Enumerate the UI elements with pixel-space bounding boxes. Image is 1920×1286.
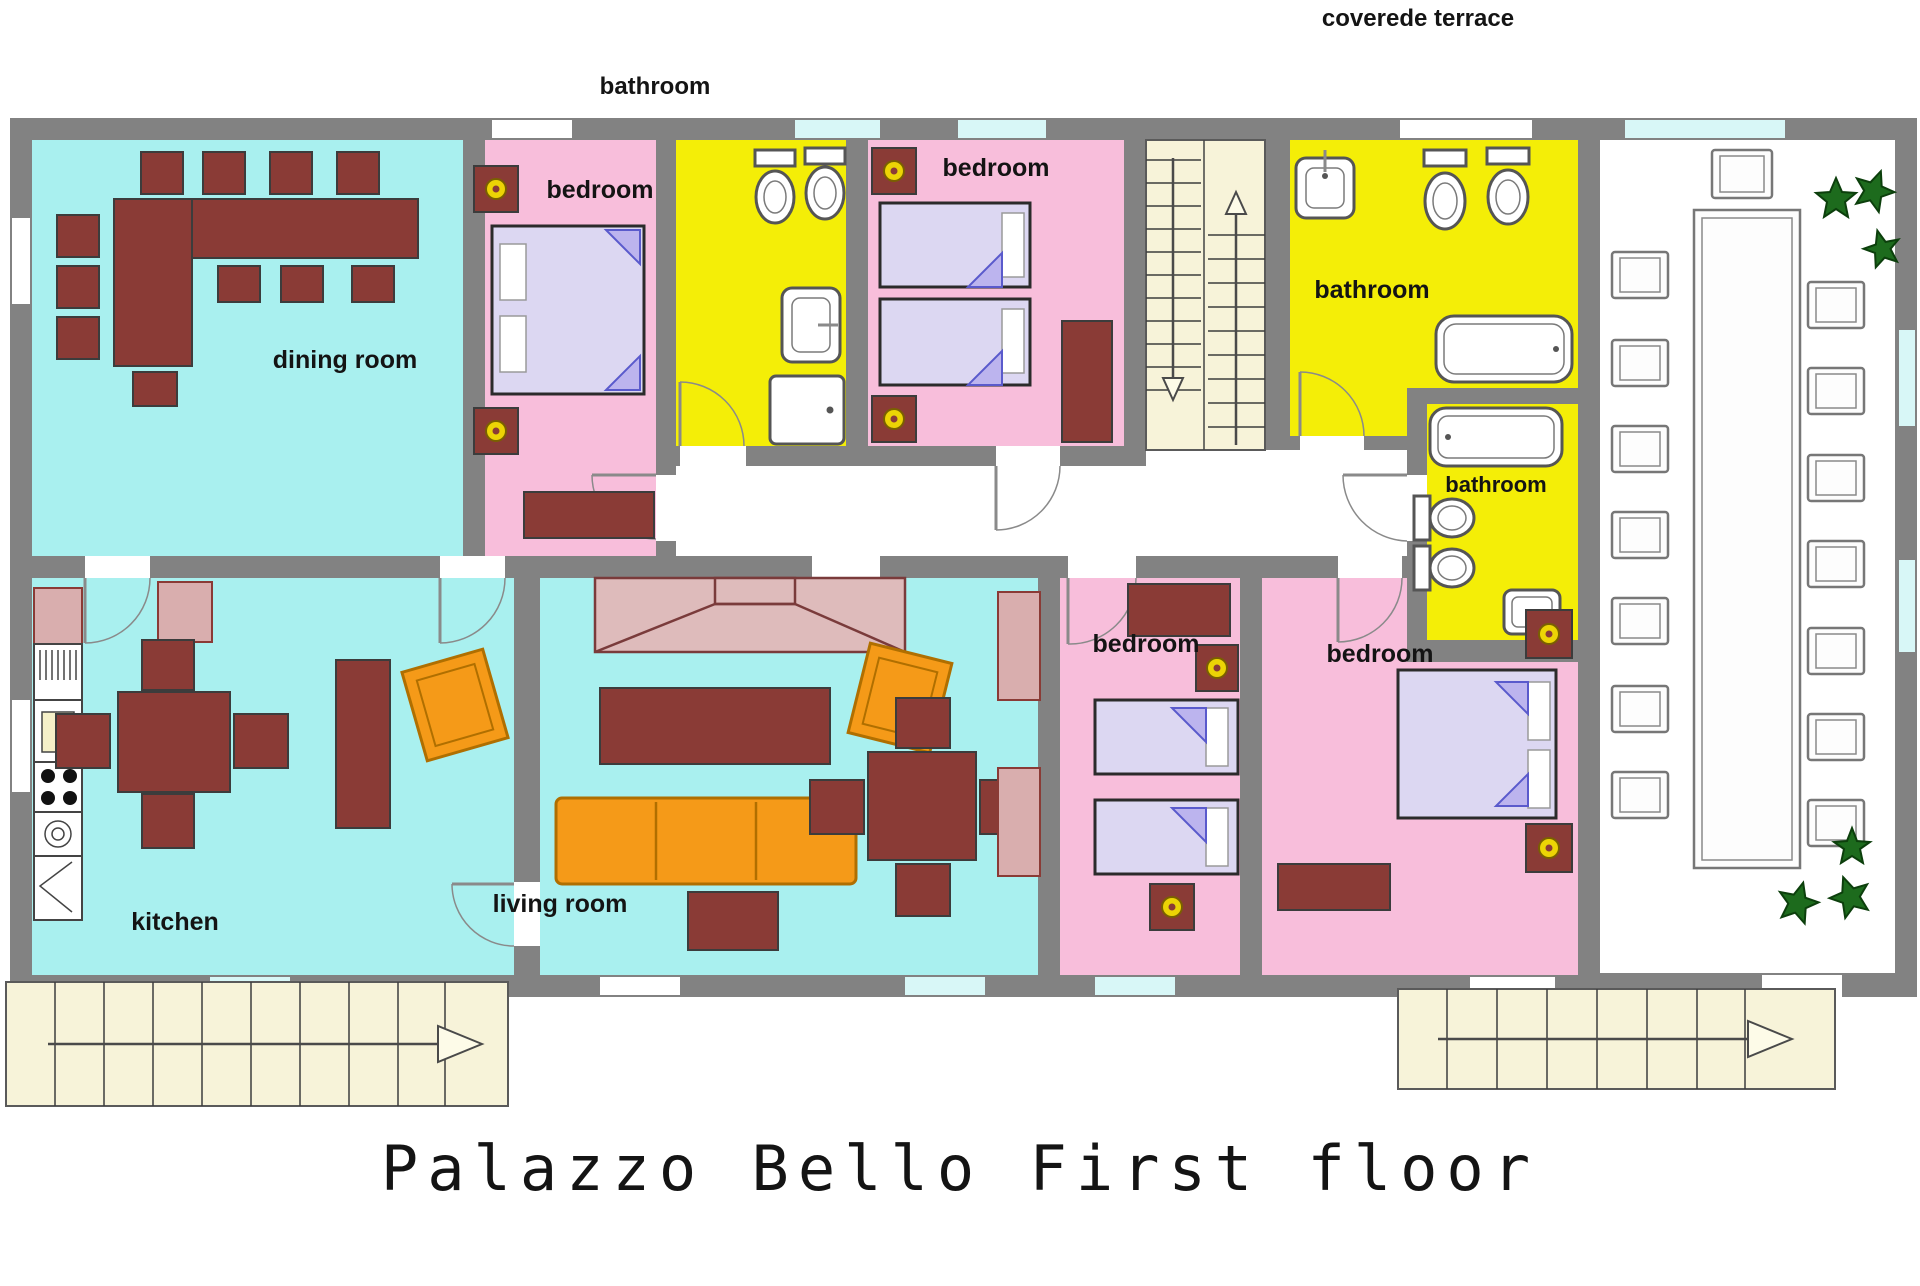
wardrobe — [1278, 864, 1390, 910]
wardrobe — [1128, 584, 1230, 636]
terrace-chair — [1612, 340, 1668, 386]
chair — [57, 215, 99, 257]
kitchen-label: kitchen — [131, 908, 219, 936]
wall-segment — [514, 578, 540, 882]
coffee-table — [600, 688, 830, 764]
chair — [141, 152, 183, 194]
wall-segment — [1136, 556, 1338, 578]
pillow — [1528, 750, 1550, 808]
bidet-icon — [805, 148, 845, 219]
wall-segment — [1290, 436, 1300, 450]
washing-machine-icon — [34, 812, 82, 856]
fireplace — [595, 578, 905, 652]
page-title: Palazzo Bello First floor — [381, 1132, 1539, 1205]
window — [1899, 560, 1915, 652]
window — [600, 977, 680, 995]
lamp-icon — [1162, 897, 1182, 917]
cabinet — [158, 582, 212, 642]
floor-plan-canvas: coverede terrace bathroom dining room be… — [0, 0, 1920, 1286]
wall-segment — [656, 541, 676, 556]
sink-icon — [782, 288, 840, 362]
dish-rack-icon — [34, 644, 82, 700]
chair — [133, 372, 177, 406]
floor-plan-page: coverede terrace bathroom dining room be… — [0, 0, 1920, 1286]
toilet-icon — [1424, 150, 1466, 229]
bedroom-4-floor-left — [1262, 578, 1407, 975]
fridge-icon — [34, 856, 82, 920]
wall-segment — [1407, 404, 1427, 475]
pillow — [1528, 682, 1550, 740]
bedroom-1-label: bedroom — [547, 176, 654, 204]
window — [795, 120, 880, 138]
terrace-chair — [1612, 598, 1668, 644]
bathroom-small-label: bathroom — [1445, 472, 1546, 497]
dresser — [524, 492, 654, 538]
bidet-icon — [1414, 546, 1474, 590]
kitchen-floor — [32, 578, 514, 975]
sink-icon — [1296, 150, 1354, 218]
chair — [56, 714, 110, 768]
chair — [57, 266, 99, 308]
wall-segment — [880, 556, 1068, 578]
chair — [352, 266, 394, 302]
lamp-icon — [1539, 624, 1559, 644]
dining-room-label: dining room — [273, 346, 417, 374]
terrace-chair — [1808, 628, 1864, 674]
chair — [270, 152, 312, 194]
wall-segment — [1364, 436, 1407, 450]
terrace-chair — [1612, 512, 1668, 558]
toilet-icon — [1487, 148, 1529, 224]
lamp-icon — [884, 161, 904, 181]
counter-cabinet — [34, 588, 82, 644]
bedroom-2-label: bedroom — [943, 154, 1050, 182]
wall-segment — [1402, 556, 1407, 578]
bed-icon — [1095, 700, 1238, 774]
bed-icon — [492, 226, 644, 394]
pillow — [1206, 708, 1228, 766]
sideboard — [688, 892, 778, 950]
lamp-icon — [884, 409, 904, 429]
chair — [203, 152, 245, 194]
wall-segment — [1407, 388, 1578, 404]
window — [12, 700, 30, 792]
bathroom-top-label: bathroom — [600, 73, 711, 100]
staircase-bottom-left — [6, 982, 508, 1106]
bedroom-3-label: bedroom — [1093, 630, 1200, 658]
window — [1095, 977, 1175, 995]
pillow — [500, 316, 526, 372]
wall-segment — [1060, 446, 1146, 466]
wall-segment — [514, 946, 540, 975]
cabinet — [998, 592, 1040, 700]
bed-icon — [1398, 670, 1556, 818]
toilet-icon — [1414, 496, 1474, 540]
wall-segment — [150, 556, 440, 578]
terrace-chair — [1808, 368, 1864, 414]
terrace-chair — [1808, 282, 1864, 328]
wall-segment — [505, 556, 812, 578]
terrace-chair — [1712, 150, 1772, 198]
window — [1899, 330, 1915, 426]
chair — [142, 640, 194, 690]
pillow — [1206, 808, 1228, 866]
terrace-chair — [1808, 541, 1864, 587]
table — [868, 752, 976, 860]
bathroom-big-label: bathroom — [1314, 276, 1429, 304]
window — [492, 120, 572, 138]
wall-segment — [656, 140, 676, 475]
bathtub-icon — [1436, 316, 1572, 382]
terrace-chair — [1612, 252, 1668, 298]
terrace-chair — [1612, 686, 1668, 732]
toilet-icon — [755, 150, 795, 223]
terrace-chair — [1808, 714, 1864, 760]
pillow — [500, 244, 526, 300]
chair — [896, 864, 950, 916]
terrace-chair — [1612, 426, 1668, 472]
covered-terrace-label: coverede terrace — [1322, 5, 1514, 32]
chair — [57, 317, 99, 359]
lamp-icon — [1539, 838, 1559, 858]
terrace-table — [1694, 210, 1800, 868]
chair — [810, 780, 864, 834]
bedroom-4-label: bedroom — [1327, 640, 1434, 668]
window — [905, 977, 985, 995]
tall-cabinet — [336, 660, 390, 828]
pillow — [1002, 309, 1024, 373]
wall-segment — [32, 556, 85, 578]
window — [12, 218, 30, 304]
terrace-chair — [1612, 772, 1668, 818]
bathtub-icon — [1430, 408, 1562, 466]
chair — [218, 266, 260, 302]
bed-icon — [880, 299, 1030, 385]
living-room-label: living room — [493, 890, 628, 918]
window — [958, 120, 1046, 138]
chair — [281, 266, 323, 302]
window — [1625, 120, 1785, 138]
cabinet — [998, 768, 1040, 876]
staircase-bottom-right — [1398, 989, 1835, 1089]
lamp-icon — [1207, 658, 1227, 678]
bed-icon — [1095, 800, 1238, 874]
wardrobe — [1062, 321, 1112, 442]
chair — [896, 698, 950, 748]
chair — [337, 152, 379, 194]
shower-icon — [770, 376, 844, 444]
chair — [142, 794, 194, 848]
window — [1400, 120, 1532, 138]
pillow — [1002, 213, 1024, 277]
stove-icon — [34, 762, 82, 812]
dining-table — [114, 199, 192, 366]
bed-icon — [880, 203, 1030, 287]
terrace-chair — [1808, 455, 1864, 501]
lamp-icon — [486, 421, 506, 441]
chair — [234, 714, 288, 768]
staircase-middle — [1146, 140, 1265, 450]
kitchen-table — [118, 692, 230, 792]
lamp-icon — [486, 179, 506, 199]
